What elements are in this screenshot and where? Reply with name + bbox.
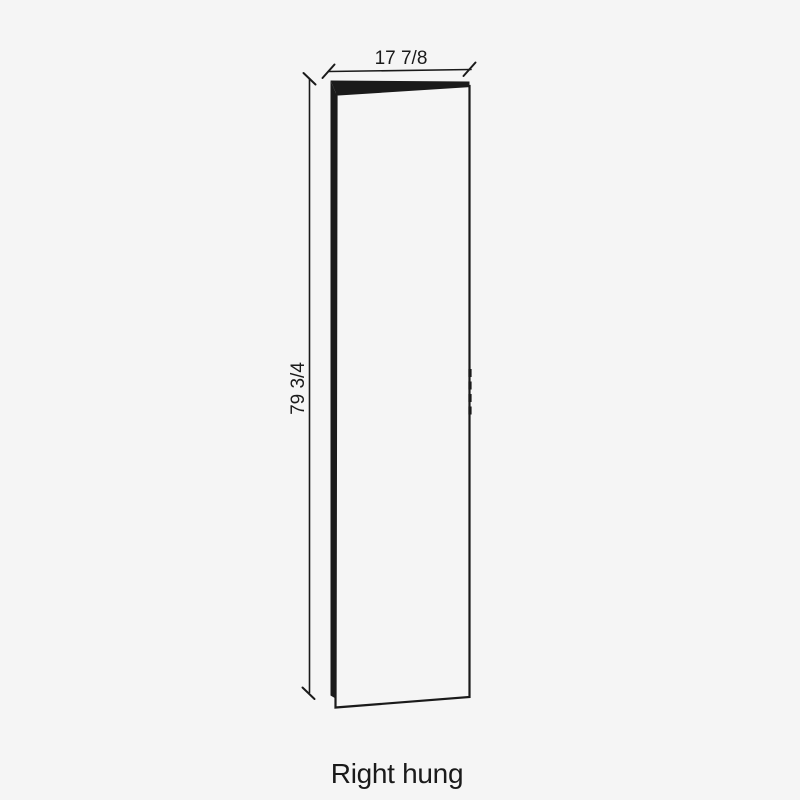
height-dimension-label: 79 3/4 — [288, 362, 309, 415]
diagram-caption: Right hung — [331, 758, 463, 789]
door-drawing: 17 7/8 79 3/4 Right hung — [0, 0, 800, 800]
width-dimension-label: 17 7/8 — [375, 48, 428, 69]
canvas-background — [0, 0, 800, 800]
door-side-edge — [331, 81, 337, 700]
door-spec-diagram: 17 7/8 79 3/4 Right hung — [0, 0, 800, 800]
